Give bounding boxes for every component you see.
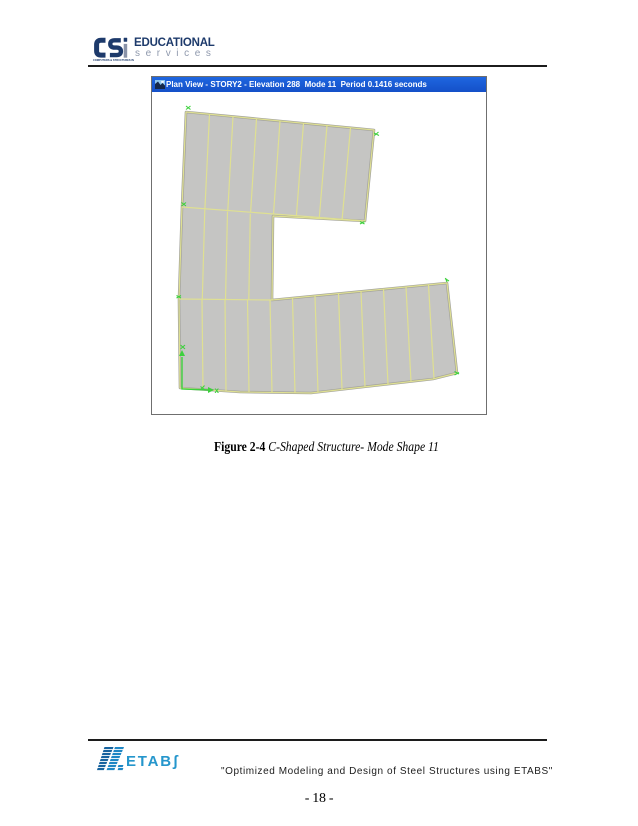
svg-text:x: x (215, 386, 220, 395)
